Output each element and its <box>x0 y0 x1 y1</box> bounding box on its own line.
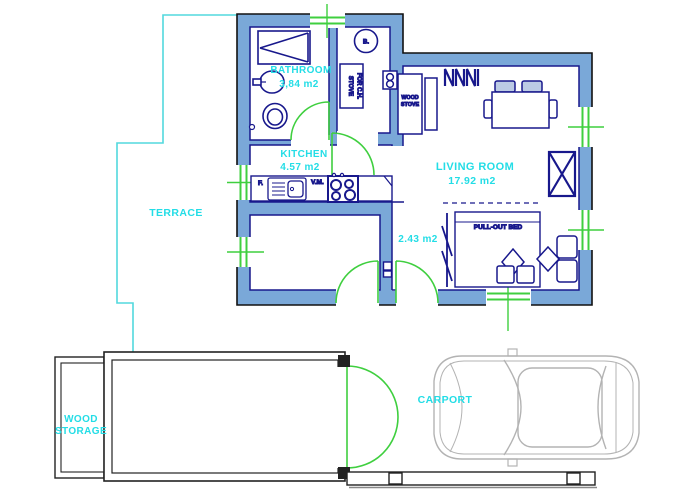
fridge-label: F. <box>258 180 263 187</box>
kitchen-fixtures: F. V.M. <box>251 173 392 202</box>
wall-valve-detail <box>250 125 255 130</box>
carport-fence <box>347 472 597 488</box>
floor-plan-drawing: B. STOVE FOR C.H. F. V.M. <box>0 0 700 500</box>
wood-stove-label-1: WOOD <box>401 95 418 101</box>
pull-out-bed-label: PULL-OUT BED <box>474 224 523 231</box>
living-room-area: 17.92 m2 <box>448 175 496 187</box>
pull-out-bed <box>442 203 540 287</box>
shower-icon <box>258 31 310 64</box>
washing-machine-label: V.M. <box>311 179 324 186</box>
kitchen-label: KITCHEN <box>280 149 327 160</box>
kitchen-area: 4.57 m2 <box>280 162 320 173</box>
stove-ch-label-1: STOVE <box>347 76 353 96</box>
storeroom-interior <box>250 215 380 290</box>
carport <box>347 349 639 488</box>
carport-label: CARPORT <box>418 394 473 406</box>
car-top-view <box>434 349 639 466</box>
wardrobe-icon <box>549 152 575 196</box>
wood-stove-label-2: STOVE <box>401 102 420 108</box>
floor-plan-page: B. STOVE FOR C.H. F. V.M. <box>0 0 700 500</box>
terrace-label: TERRACE <box>149 207 203 219</box>
bathroom-area: 3,84 m2 <box>279 79 319 90</box>
kitchen-sink-icon <box>268 178 306 200</box>
wood-storage-label-2: STORAGE <box>55 426 107 437</box>
hall-area: 2.43 m2 <box>398 234 438 245</box>
bathroom-label: BATHROOM <box>270 65 331 76</box>
garage-doors <box>338 355 398 479</box>
stove-ch-label-2: FOR C.H. <box>356 73 362 100</box>
terrace-outline <box>117 15 237 352</box>
garage-building <box>104 352 348 481</box>
chimney-flue-icon <box>383 71 397 89</box>
living-room-label: LIVING ROOM <box>436 161 514 173</box>
door-post <box>338 355 350 367</box>
door-lock-hardware <box>384 262 392 277</box>
wood-storage-label-1: WOOD <box>64 414 98 425</box>
pillow <box>517 266 534 283</box>
cooktop-icon <box>328 173 358 202</box>
toilet-icon <box>263 104 287 129</box>
boiler-label: B. <box>363 40 369 46</box>
pillow <box>497 266 514 283</box>
